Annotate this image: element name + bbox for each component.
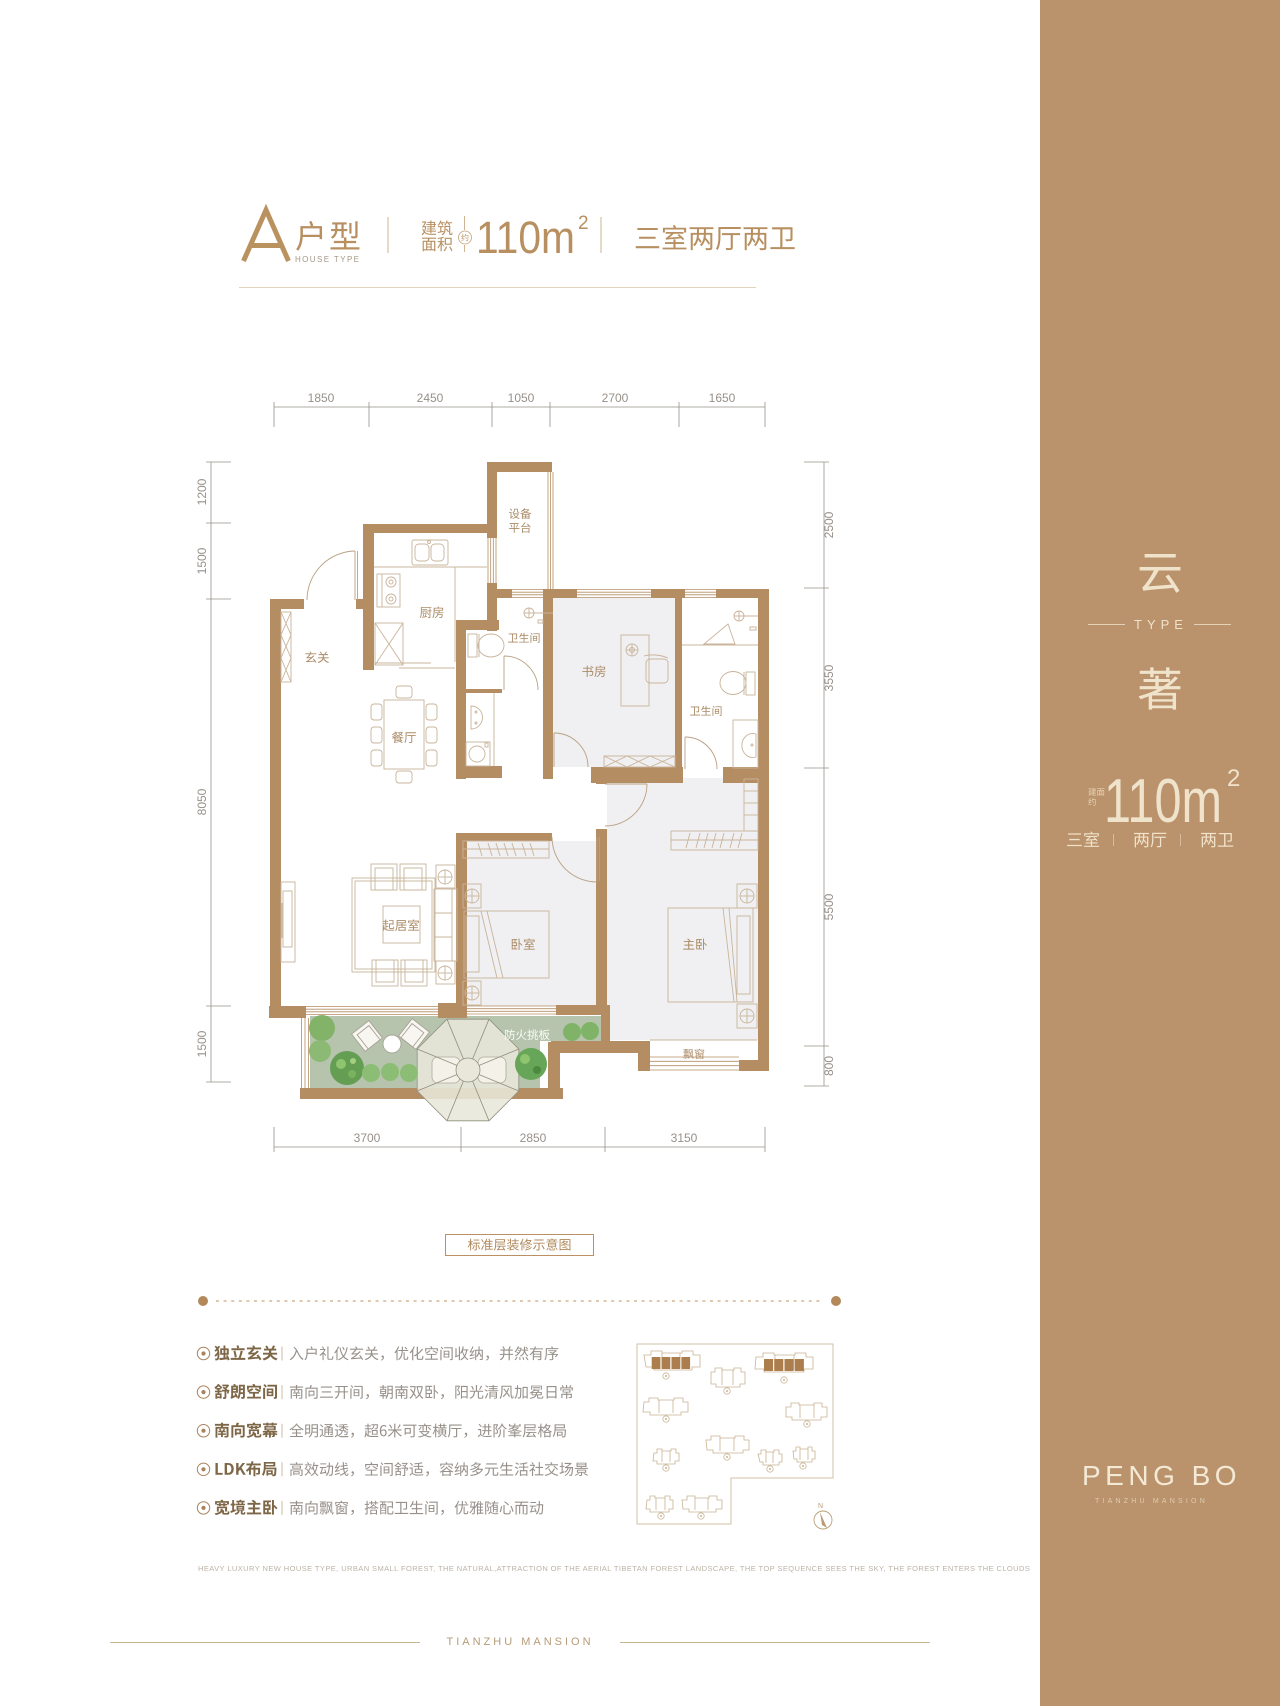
svg-text:110m: 110m bbox=[1104, 767, 1222, 836]
svg-text:800: 800 bbox=[822, 1056, 836, 1076]
svg-text:1500: 1500 bbox=[195, 547, 209, 574]
svg-text:N: N bbox=[818, 1503, 823, 1510]
svg-text:TYPE: TYPE bbox=[1134, 617, 1188, 632]
svg-text:2500: 2500 bbox=[822, 511, 836, 538]
svg-text:1050: 1050 bbox=[508, 391, 535, 405]
svg-text:PENG BO: PENG BO bbox=[1082, 1460, 1241, 1491]
svg-text:2: 2 bbox=[1227, 765, 1240, 792]
svg-text:3550: 3550 bbox=[822, 664, 836, 691]
svg-text:TIANZHU MANSION: TIANZHU MANSION bbox=[1095, 1498, 1208, 1505]
svg-text:2850: 2850 bbox=[520, 1131, 547, 1145]
svg-text:2450: 2450 bbox=[417, 391, 444, 405]
svg-text:1850: 1850 bbox=[308, 391, 335, 405]
svg-text:3150: 3150 bbox=[671, 1131, 698, 1145]
svg-text:8050: 8050 bbox=[195, 788, 209, 815]
svg-text:1200: 1200 bbox=[195, 478, 209, 505]
svg-text:2700: 2700 bbox=[602, 391, 629, 405]
svg-text:3700: 3700 bbox=[354, 1131, 381, 1145]
svg-text:1500: 1500 bbox=[195, 1030, 209, 1057]
svg-text:1650: 1650 bbox=[709, 391, 736, 405]
svg-text:5500: 5500 bbox=[822, 893, 836, 920]
